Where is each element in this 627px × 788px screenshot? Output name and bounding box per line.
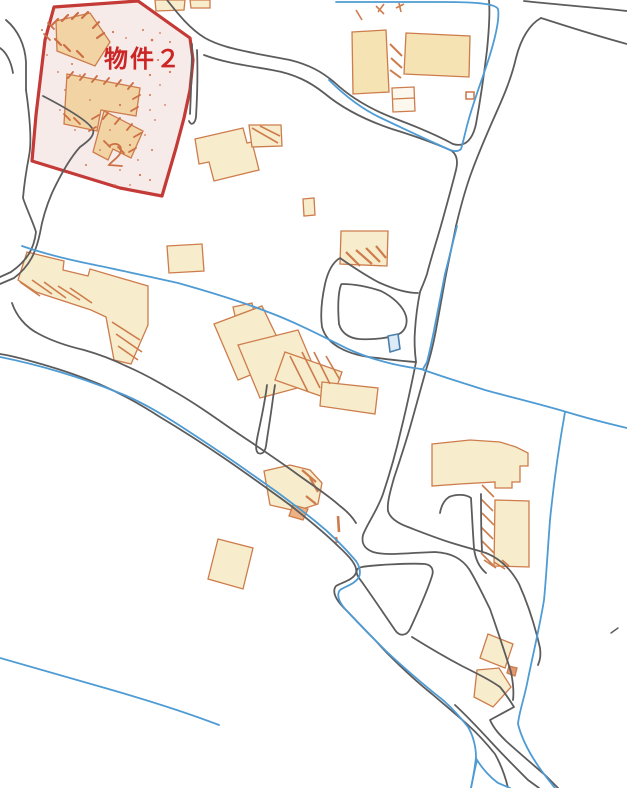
svg-text:物件２: 物件２	[104, 46, 182, 73]
